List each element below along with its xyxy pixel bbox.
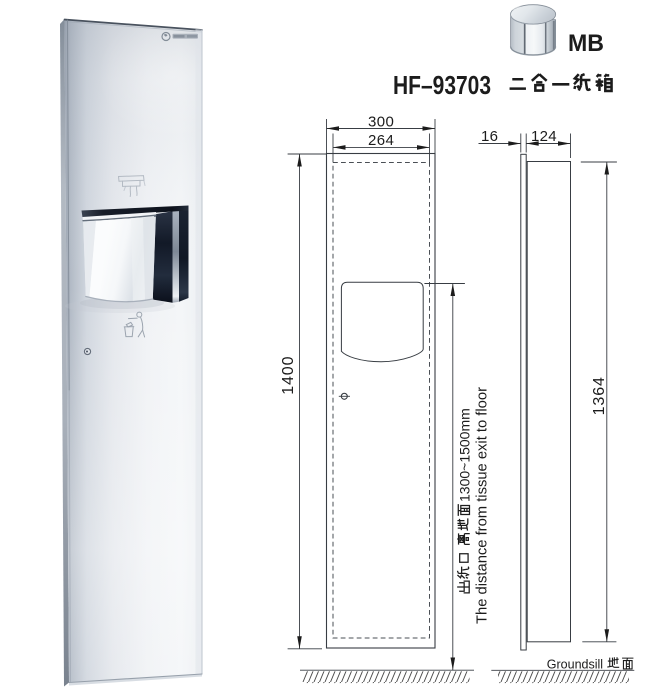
svg-text:HF–93703: HF–93703 xyxy=(393,70,491,100)
svg-text:The distance from tissue exit: The distance from tissue exit to floor xyxy=(474,387,491,624)
svg-text:124: 124 xyxy=(531,128,557,145)
svg-text:1364: 1364 xyxy=(591,376,608,415)
svg-text:1300~1500mm: 1300~1500mm xyxy=(457,408,473,502)
svg-text:264: 264 xyxy=(368,132,394,149)
svg-text:300: 300 xyxy=(368,114,394,131)
svg-text:16: 16 xyxy=(481,128,498,145)
svg-text:1400: 1400 xyxy=(280,356,297,395)
svg-text:MB: MB xyxy=(568,30,604,57)
svg-text:Groundsill: Groundsill xyxy=(547,657,603,671)
